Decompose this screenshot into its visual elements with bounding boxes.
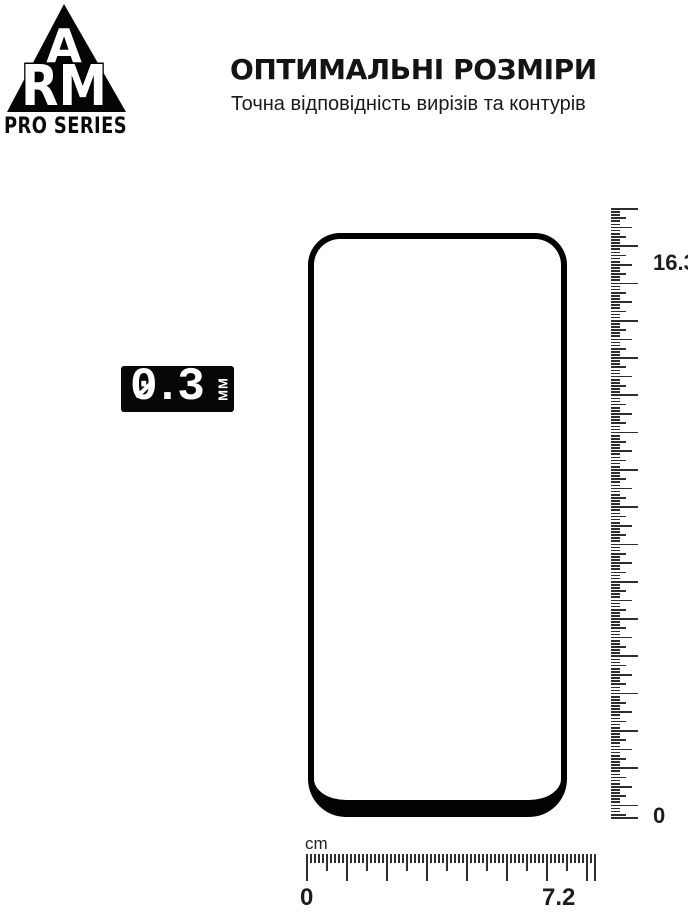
- ruler-tick: [354, 854, 356, 863]
- ruler-tick: [474, 854, 476, 863]
- ruler-tick: [611, 447, 620, 449]
- ruler-tick: [611, 752, 620, 754]
- ruler-tick: [611, 764, 620, 766]
- ruler-tick: [611, 783, 620, 785]
- ruler-tick: [418, 854, 420, 863]
- ruler-tick: [611, 792, 620, 794]
- ruler-tick: [542, 854, 544, 863]
- ruler-tick: [486, 854, 488, 871]
- ruler-tick: [611, 537, 620, 539]
- ruler-tick: [611, 600, 632, 602]
- ruler-tick: [611, 270, 620, 272]
- ruler-tick: [611, 453, 620, 455]
- ruler-tick: [611, 578, 620, 580]
- ruler-tick: [611, 289, 620, 291]
- ruler-tick: [611, 239, 620, 241]
- logo-letters-rm: RM: [21, 54, 107, 119]
- ruler-tick: [611, 236, 626, 238]
- ruler-tick: [611, 348, 626, 350]
- ruler-tick: [482, 854, 484, 863]
- ruler-tick: [338, 854, 340, 863]
- ruler-tick: [562, 854, 564, 863]
- ruler-tick: [611, 419, 620, 421]
- ruler-tick: [611, 798, 620, 800]
- ruler-tick: [611, 696, 620, 698]
- ruler-tick: [611, 513, 620, 515]
- ruler-tick: [611, 360, 620, 362]
- ruler-tick: [611, 671, 620, 673]
- ruler-tick: [611, 690, 620, 692]
- ruler-tick: [611, 261, 620, 263]
- vertical-ruler-min-label: 0: [653, 803, 665, 829]
- ruler-tick: [611, 295, 620, 297]
- ruler-tick: [611, 581, 638, 583]
- ruler-tick: [390, 854, 392, 863]
- ruler-tick: [611, 739, 626, 741]
- ruler-tick: [318, 854, 320, 863]
- ruler-tick: [406, 854, 408, 871]
- ruler-tick: [611, 718, 620, 720]
- ruler-tick: [611, 687, 620, 689]
- ruler-tick: [394, 854, 396, 863]
- ruler-tick: [611, 394, 638, 396]
- ruler-tick: [522, 854, 524, 863]
- ruler-tick: [611, 304, 620, 306]
- ruler-tick: [611, 531, 620, 533]
- ruler-tick: [611, 500, 620, 502]
- ruler-tick: [611, 286, 620, 288]
- ruler-tick: [322, 854, 324, 863]
- ruler-tick: [526, 854, 528, 871]
- ruler-tick: [611, 780, 620, 782]
- ruler-tick: [442, 854, 444, 863]
- ruler-tick: [611, 509, 620, 511]
- ruler-tick: [611, 587, 620, 589]
- ruler-tick: [611, 208, 638, 210]
- header: ОПТИМАЛЬНІ РОЗМІРИ Точна відповідність в…: [230, 55, 660, 116]
- ruler-tick: [611, 593, 620, 595]
- ruler-tick: [611, 817, 638, 819]
- horizontal-ruler-min-label: 0: [300, 884, 313, 912]
- ruler-tick: [611, 596, 620, 598]
- ruler-tick: [611, 298, 620, 300]
- ruler-tick: [611, 388, 620, 390]
- ruler-tick: [611, 248, 620, 250]
- ruler-tick: [386, 854, 388, 881]
- ruler-tick: [611, 708, 620, 710]
- ruler-tick: [611, 575, 620, 577]
- thickness-badge: 0.3 ММ: [121, 366, 234, 412]
- ruler-tick: [530, 854, 532, 863]
- ruler-tick: [611, 755, 620, 757]
- ruler-tick: [611, 404, 626, 406]
- ruler-tick: [611, 516, 626, 518]
- ruler-tick: [611, 749, 632, 751]
- ruler-tick: [611, 550, 620, 552]
- ruler-tick: [611, 544, 638, 546]
- ruler-tick: [611, 652, 620, 654]
- ruler-tick: [506, 854, 508, 881]
- ruler-tick: [611, 301, 632, 303]
- ruler-tick: [611, 323, 620, 325]
- ruler-tick: [611, 699, 620, 701]
- ruler-tick: [611, 267, 620, 269]
- ruler-tick: [538, 854, 540, 863]
- ruler-tick: [518, 854, 520, 863]
- ruler-tick: [494, 854, 496, 863]
- ruler-tick: [611, 317, 620, 319]
- ruler-tick: [611, 665, 626, 667]
- ruler-tick: [611, 407, 620, 409]
- ruler-tick: [362, 854, 364, 863]
- page-subtitle: Точна відповідність вирізів та контурів: [231, 93, 660, 116]
- ruler-tick: [611, 733, 620, 735]
- ruler-tick: [611, 786, 632, 788]
- ruler-tick: [611, 680, 620, 682]
- ruler-tick: [611, 224, 620, 226]
- ruler-tick: [611, 233, 620, 235]
- ruler-tick: [590, 854, 592, 863]
- ruler-tick: [611, 245, 638, 247]
- ruler-tick: [611, 624, 620, 626]
- ruler-tick: [366, 854, 368, 871]
- ruler-tick: [611, 621, 620, 623]
- ruler-tick: [611, 426, 620, 428]
- ruler-tick: [611, 264, 632, 266]
- ruler-tick: [611, 606, 620, 608]
- ruler-tick: [611, 450, 632, 452]
- ruler-tick: [374, 854, 376, 863]
- ruler-tick: [611, 469, 638, 471]
- ruler-tick: [611, 382, 620, 384]
- ruler-tick: [611, 506, 638, 508]
- ruler-tick: [611, 354, 620, 356]
- ruler-tick: [611, 398, 620, 400]
- ruler-tick: [611, 311, 626, 313]
- ruler-tick: [611, 345, 620, 347]
- ruler-tick: [611, 556, 620, 558]
- ruler-tick: [611, 711, 632, 713]
- ruler-tick: [611, 643, 620, 645]
- ruler-tick: [310, 854, 312, 863]
- ruler-tick: [611, 808, 620, 810]
- ruler-tick: [611, 391, 620, 393]
- ruler-tick: [611, 326, 620, 328]
- ruler-tick: [611, 227, 632, 229]
- ruler-tick: [611, 547, 620, 549]
- horizontal-ruler-unit-label: cm: [305, 834, 328, 854]
- ruler-tick: [594, 854, 596, 881]
- ruler-tick: [611, 401, 620, 403]
- ruler-tick: [611, 376, 632, 378]
- ruler-tick: [398, 854, 400, 863]
- ruler-tick: [611, 674, 632, 676]
- brand-logo: A RM PRO SERIES: [3, 2, 131, 138]
- ruler-tick: [611, 774, 620, 776]
- ruler-tick: [346, 854, 348, 881]
- ruler-tick: [342, 854, 344, 863]
- ruler-tick: [611, 640, 620, 642]
- ruler-tick: [611, 491, 620, 493]
- ruler-tick: [611, 503, 620, 505]
- ruler-tick: [611, 457, 620, 459]
- ruler-tick: [611, 332, 620, 334]
- ruler-tick: [611, 730, 638, 732]
- vertical-ruler: [611, 208, 643, 819]
- ruler-tick: [611, 335, 620, 337]
- ruler-tick: [611, 659, 620, 661]
- ruler-tick: [382, 854, 384, 863]
- ruler-tick: [466, 854, 468, 881]
- ruler-tick: [611, 615, 620, 617]
- ruler-tick: [611, 590, 626, 592]
- ruler-tick: [611, 478, 626, 480]
- ruler-tick: [611, 463, 620, 465]
- ruler-tick: [611, 307, 620, 309]
- ruler-tick: [611, 811, 620, 813]
- ruler-tick: [611, 562, 632, 564]
- ruler-tick: [611, 211, 620, 213]
- ruler-tick: [458, 854, 460, 863]
- ruler-tick: [611, 485, 620, 487]
- ruler-tick: [611, 217, 626, 219]
- ruler-tick: [570, 854, 572, 863]
- ruler-tick: [611, 634, 620, 636]
- ruler-tick: [314, 854, 316, 863]
- ruler-tick: [611, 646, 626, 648]
- ruler-tick: [326, 854, 328, 871]
- ruler-tick: [611, 410, 620, 412]
- ruler-tick: [611, 357, 638, 359]
- ruler-tick: [611, 481, 620, 483]
- ruler-tick: [611, 683, 626, 685]
- ruler-tick: [611, 252, 620, 254]
- ruler-tick: [611, 702, 626, 704]
- ruler-tick: [611, 519, 620, 521]
- ruler-tick: [330, 854, 332, 863]
- ruler-tick: [611, 724, 620, 726]
- ruler-tick: [611, 528, 620, 530]
- ruler-tick: [426, 854, 428, 881]
- ruler-tick: [490, 854, 492, 863]
- screen-protector-outline: [308, 233, 567, 817]
- ruler-tick: [611, 736, 620, 738]
- ruler-tick: [611, 655, 638, 657]
- ruler-tick: [611, 472, 620, 474]
- logo-series-text: PRO SERIES: [4, 114, 127, 138]
- ruler-tick: [611, 559, 620, 561]
- thickness-unit: ММ: [216, 377, 231, 401]
- ruler-tick: [446, 854, 448, 871]
- ruler-tick: [611, 603, 620, 605]
- ruler-tick: [454, 854, 456, 863]
- ruler-tick: [582, 854, 584, 863]
- ruler-tick: [611, 534, 626, 536]
- horizontal-ruler-max-label: 7.2: [542, 884, 575, 912]
- ruler-tick: [611, 320, 638, 322]
- horizontal-ruler: [306, 854, 598, 882]
- ruler-tick: [611, 416, 620, 418]
- ruler-tick: [611, 342, 620, 344]
- ruler-tick: [611, 422, 626, 424]
- ruler-tick: [611, 677, 620, 679]
- ruler-tick: [350, 854, 352, 863]
- ruler-tick: [370, 854, 372, 863]
- ruler-tick: [611, 814, 626, 816]
- ruler-tick: [611, 370, 620, 372]
- ruler-tick: [611, 767, 638, 769]
- ruler-tick: [611, 435, 620, 437]
- ruler-tick: [611, 668, 620, 670]
- page-title: ОПТИМАЛЬНІ РОЗМІРИ: [230, 55, 660, 84]
- ruler-tick: [611, 441, 626, 443]
- ruler-tick: [611, 429, 620, 431]
- ruler-tick: [611, 314, 620, 316]
- ruler-tick: [611, 525, 632, 527]
- ruler-tick: [611, 488, 632, 490]
- ruler-tick: [402, 854, 404, 863]
- ruler-tick: [611, 746, 620, 748]
- ruler-tick: [611, 494, 620, 496]
- ruler-tick: [414, 854, 416, 863]
- ruler-tick: [611, 214, 620, 216]
- ruler-tick: [502, 854, 504, 863]
- ruler-tick: [611, 795, 626, 797]
- ruler-tick: [611, 612, 620, 614]
- product-infographic: A RM PRO SERIES ОПТИМАЛЬНІ РОЗМІРИ Точна…: [0, 0, 688, 912]
- ruler-tick: [611, 329, 626, 331]
- ruler-tick: [611, 618, 638, 620]
- ruler-tick: [611, 637, 632, 639]
- ruler-tick: [611, 721, 626, 723]
- ruler-tick: [434, 854, 436, 863]
- ruler-tick: [611, 693, 638, 695]
- ruler-tick: [611, 761, 620, 763]
- ruler-tick: [611, 627, 626, 629]
- ruler-tick: [611, 705, 620, 707]
- ruler-tick: [611, 777, 626, 779]
- ruler-tick: [534, 854, 536, 863]
- ruler-tick: [611, 283, 638, 285]
- ruler-tick: [611, 742, 620, 744]
- ruler-tick: [611, 460, 626, 462]
- ruler-tick: [586, 854, 588, 881]
- thickness-value: 0.3: [130, 364, 201, 410]
- ruler-tick: [422, 854, 424, 863]
- ruler-tick: [611, 522, 620, 524]
- ruler-tick: [611, 662, 620, 664]
- ruler-tick: [470, 854, 472, 863]
- ruler-tick: [462, 854, 464, 863]
- ruler-tick: [611, 339, 632, 341]
- ruler-tick: [510, 854, 512, 863]
- ruler-tick: [611, 565, 620, 567]
- ruler-tick: [611, 758, 626, 760]
- ruler-tick: [566, 854, 568, 871]
- ruler-tick: [358, 854, 360, 863]
- ruler-tick: [611, 789, 620, 791]
- ruler-tick: [611, 584, 620, 586]
- ruler-tick: [611, 540, 620, 542]
- ruler-tick: [611, 413, 632, 415]
- ruler-tick: [611, 242, 620, 244]
- ruler-tick: [611, 631, 620, 633]
- ruler-tick: [611, 432, 638, 434]
- ruler-tick: [611, 230, 620, 232]
- ruler-tick: [611, 292, 626, 294]
- ruler-tick: [430, 854, 432, 863]
- ruler-tick: [611, 649, 620, 651]
- ruler-tick: [306, 854, 308, 881]
- ruler-tick: [611, 379, 620, 381]
- ruler-tick: [611, 273, 626, 275]
- ruler-tick: [611, 714, 620, 716]
- ruler-tick: [378, 854, 380, 863]
- ruler-tick: [514, 854, 516, 863]
- ruler-tick: [611, 466, 620, 468]
- ruler-tick: [611, 276, 620, 278]
- vertical-ruler-max-label: 16.3: [653, 250, 688, 276]
- ruler-tick: [611, 351, 620, 353]
- ruler-tick: [611, 568, 620, 570]
- ruler-tick: [611, 609, 626, 611]
- ruler-tick: [611, 366, 626, 368]
- ruler-tick: [611, 255, 626, 257]
- ruler-tick: [550, 854, 552, 863]
- ruler-tick: [498, 854, 500, 863]
- ruler-tick: [450, 854, 452, 863]
- ruler-tick: [611, 279, 620, 281]
- ruler-tick: [611, 363, 620, 365]
- ruler-tick: [546, 854, 548, 881]
- ruler-tick: [611, 385, 626, 387]
- ruler-tick: [611, 801, 620, 803]
- ruler-tick: [611, 220, 620, 222]
- ruler-tick: [611, 438, 620, 440]
- ruler-tick: [334, 854, 336, 863]
- ruler-tick: [611, 553, 626, 555]
- ruler-tick: [611, 475, 620, 477]
- ruler-tick: [574, 854, 576, 863]
- ruler-tick: [611, 497, 626, 499]
- ruler-tick: [410, 854, 412, 863]
- ruler-tick: [554, 854, 556, 863]
- ruler-tick: [578, 854, 580, 863]
- ruler-tick: [611, 805, 638, 807]
- ruler-tick: [478, 854, 480, 863]
- ruler-tick: [611, 373, 620, 375]
- ruler-tick: [611, 727, 620, 729]
- ruler-tick: [611, 444, 620, 446]
- ruler-tick: [611, 572, 626, 574]
- ruler-tick: [611, 770, 620, 772]
- ruler-tick: [611, 258, 620, 260]
- ruler-tick: [438, 854, 440, 863]
- ruler-tick: [558, 854, 560, 863]
